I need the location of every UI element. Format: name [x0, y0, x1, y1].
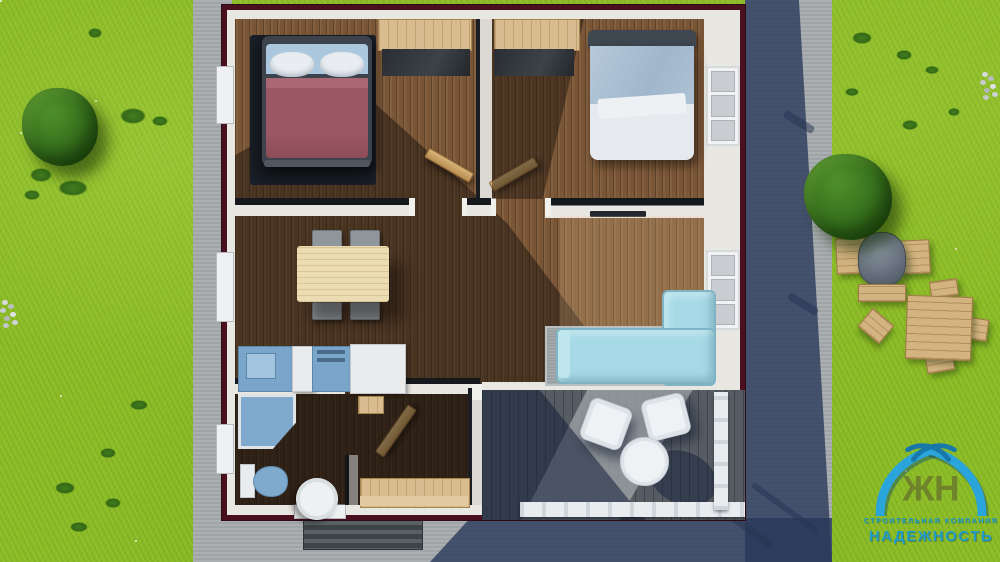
bush — [902, 120, 918, 130]
logo-roof-icon: ЖН — [862, 438, 1000, 516]
bush — [30, 168, 52, 182]
fridge — [350, 344, 406, 394]
bed2-headboard — [588, 30, 696, 47]
dining-chair — [350, 302, 380, 320]
terrace-door-frame — [472, 384, 482, 400]
bush — [896, 50, 912, 60]
toilet — [253, 466, 288, 497]
logo-tagline: СТРОИТЕЛЬНАЯ КОМПАНИЯ — [862, 518, 1000, 525]
bush — [24, 190, 40, 200]
logo-monogram: ЖН — [901, 469, 959, 508]
round-sink — [296, 478, 338, 520]
dining-chair — [312, 302, 342, 320]
watermark-logo: ЖН СТРОИТЕЛЬНАЯ КОМПАНИЯ НАДЕЖНОСТЬ — [862, 438, 1000, 550]
bed1-blanket — [266, 78, 368, 158]
door-jamb — [462, 198, 467, 216]
window-kitchen — [216, 252, 234, 322]
stove-burner — [317, 358, 345, 362]
bed1-footboard — [264, 160, 370, 167]
wardrobe2 — [494, 19, 580, 51]
bush — [58, 180, 88, 196]
window-pane — [711, 71, 735, 92]
bed1-pillow — [270, 52, 314, 77]
stove-burner — [317, 350, 345, 354]
bush — [845, 88, 859, 96]
door-jamb — [491, 198, 496, 216]
window-pane — [711, 255, 735, 276]
bbq-grill-dome — [858, 232, 906, 286]
bush — [55, 482, 75, 494]
bush — [105, 498, 121, 508]
entry-cabinet-front — [360, 496, 468, 506]
window-bedroom2 — [706, 66, 740, 146]
rocks — [2, 300, 26, 334]
entry-shelf — [358, 396, 384, 414]
house-shadow-bottom — [430, 518, 832, 562]
window-bedroom1 — [216, 66, 234, 124]
bush — [948, 108, 960, 116]
bush — [152, 116, 168, 126]
door-jamb — [545, 198, 551, 216]
window-pane — [711, 95, 735, 116]
wall-hall-left — [235, 198, 415, 216]
terrace-railing-right — [714, 392, 728, 510]
bush — [130, 400, 148, 410]
grass-flecks — [0, 0, 2, 2]
kitchen-cabinet — [292, 346, 314, 392]
entry-steps — [303, 520, 423, 550]
logo-brand: НАДЕЖНОСТЬ — [862, 528, 1000, 545]
corner-sofa-seat — [556, 328, 716, 384]
wall-bedroom-divider — [476, 19, 492, 205]
door-jamb — [409, 198, 415, 216]
terrace-round-table — [620, 437, 669, 486]
picnic-table — [905, 295, 973, 361]
bush — [852, 32, 872, 44]
bush — [70, 522, 88, 532]
wardrobe2-glass — [494, 49, 574, 76]
window-pane — [711, 120, 735, 141]
bush — [925, 66, 939, 74]
rocks — [982, 72, 1000, 102]
wardrobe1-glass — [382, 49, 470, 76]
grill-front-board — [858, 284, 906, 302]
aerial-house-render: ЖН СТРОИТЕЛЬНАЯ КОМПАНИЯ НАДЕЖНОСТЬ — [0, 0, 1000, 562]
dining-table — [297, 246, 389, 302]
bush — [88, 28, 102, 38]
bush — [100, 448, 116, 458]
terrace-railing-bottom — [520, 502, 745, 517]
sofa-armrest — [558, 330, 570, 378]
wall-entry-terrace — [468, 388, 482, 505]
bed1-pillow — [320, 52, 364, 77]
kitchen-sink-bowl — [246, 353, 276, 379]
wardrobe1 — [378, 19, 472, 51]
bush — [120, 108, 146, 124]
window-bathroom — [216, 424, 234, 474]
